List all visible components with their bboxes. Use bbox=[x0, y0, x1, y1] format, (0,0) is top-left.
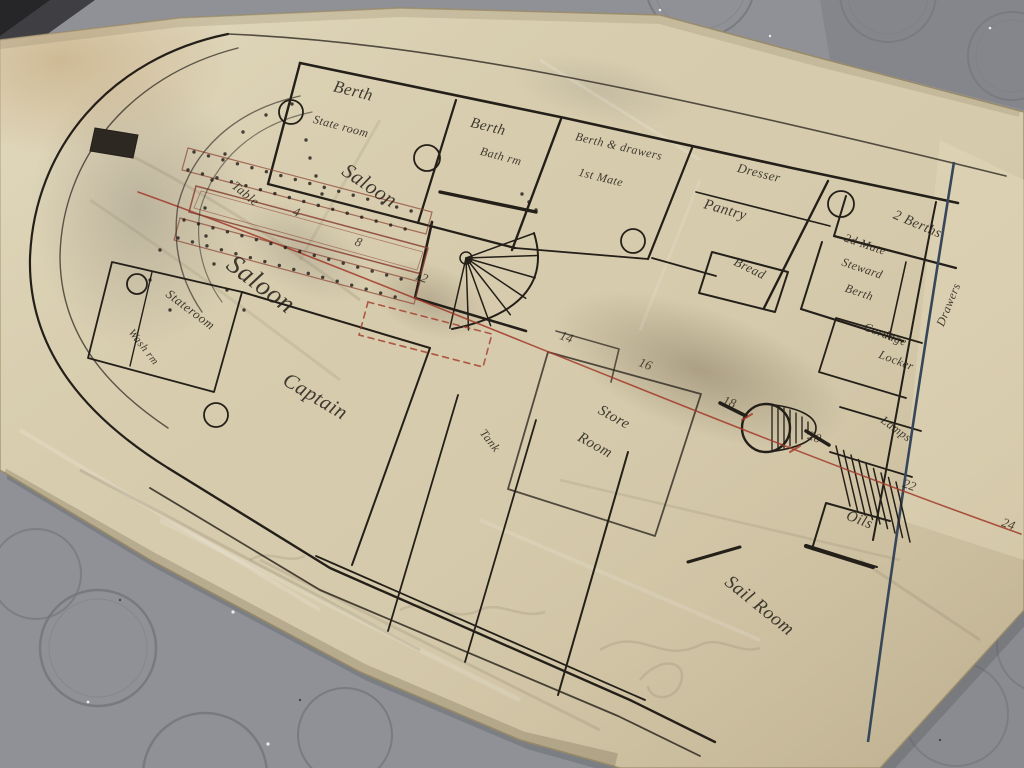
photo-ship-deck-plan: BerthState roomBerthBath rmBerth & drawe… bbox=[0, 0, 1024, 768]
scene-canvas: BerthState roomBerthBath rmBerth & drawe… bbox=[0, 0, 1024, 768]
